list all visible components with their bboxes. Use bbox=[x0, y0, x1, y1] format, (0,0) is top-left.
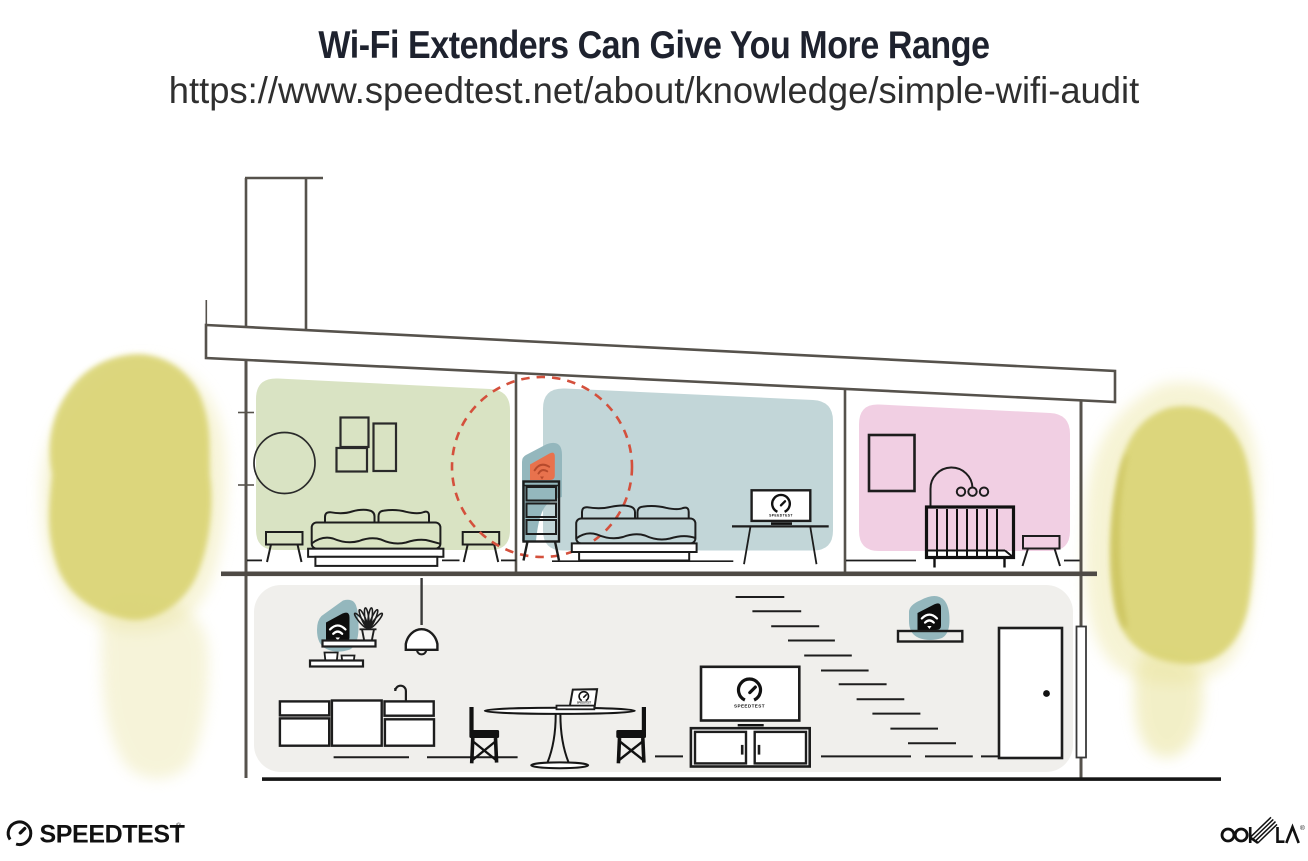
svg-text:SPEEDTEST: SPEEDTEST bbox=[734, 704, 765, 709]
svg-text:SPEEDTEST: SPEEDTEST bbox=[577, 702, 592, 705]
svg-text:®: ® bbox=[176, 822, 182, 830]
svg-text:®: ® bbox=[1300, 824, 1305, 832]
svg-text:SPEEDTEST: SPEEDTEST bbox=[40, 821, 185, 849]
svg-text:SPEEDTEST: SPEEDTEST bbox=[769, 514, 793, 518]
